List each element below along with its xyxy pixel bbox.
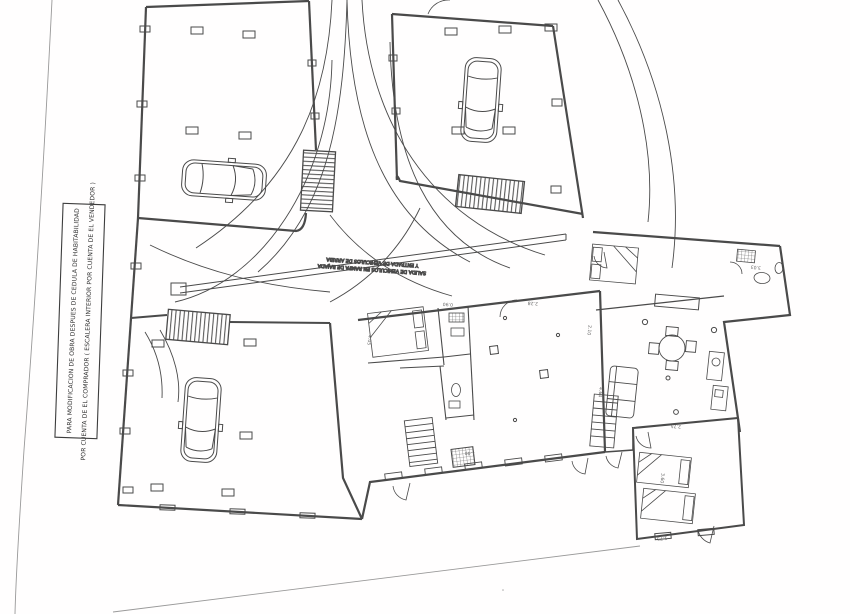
column [239, 132, 251, 139]
apartment-centre [358, 291, 605, 519]
dimension-label: 2.10 [585, 325, 592, 336]
right-block [590, 232, 790, 543]
annotation-box-frame [55, 203, 105, 438]
column [503, 127, 515, 134]
hatched-ramp-icon [456, 175, 525, 214]
column [186, 127, 198, 134]
pilaster [551, 186, 561, 193]
column [499, 26, 511, 33]
dimension-label: 2.75 [671, 423, 682, 430]
column [243, 31, 255, 38]
dimension-label: 0.90 [443, 301, 454, 308]
dimension-label: 1.75 [657, 535, 668, 542]
dimension-label: 3.60 [658, 473, 665, 484]
paper-left-edge [15, 0, 52, 614]
floor-plan-drawing: PARA MODIFICACION DE OBRA DESPUES DE CED… [0, 0, 850, 614]
kitchen-counter [707, 351, 729, 410]
dining-table-icon [648, 326, 696, 370]
column [244, 339, 256, 346]
scanned-floor-plan-page: PARA MODIFICACION DE OBRA DESPUES DE CED… [0, 0, 850, 614]
column [490, 346, 499, 355]
dimension-label: 2.28 [528, 300, 539, 307]
paper-bottom-edge [113, 546, 640, 612]
bed-icon [641, 488, 696, 523]
column [240, 432, 252, 439]
column [452, 127, 464, 134]
column [152, 340, 164, 347]
column [191, 27, 203, 34]
door-swing-icon [428, 0, 450, 14]
garage-top-left [135, 1, 336, 231]
staircase-icon [404, 417, 437, 466]
column [540, 370, 549, 379]
kitchen-hatch [451, 447, 475, 468]
car-icon [456, 57, 506, 144]
car-icon [181, 155, 268, 205]
dimension-label: 4.05 [365, 335, 372, 346]
bathroom-fixtures [449, 313, 464, 408]
door-swing-icon [393, 300, 588, 500]
dimension-label: 4.64 [596, 387, 603, 398]
column [445, 28, 457, 35]
plan: SALIDA DE VEHICULOS EN RAMPA DE BAJADA Y… [118, 0, 790, 543]
car-icon [176, 377, 226, 464]
column [222, 489, 234, 496]
dimension-label: 3.03 [750, 263, 761, 270]
wardrobe [655, 294, 700, 310]
pilaster [552, 99, 562, 106]
bed-icon [590, 244, 639, 284]
scan-speck [502, 589, 504, 591]
annotation-box: PARA MODIFICACION DE OBRA DESPUES DE CED… [54, 181, 106, 461]
toilet-icon [452, 384, 461, 397]
hatched-ramp-icon [166, 309, 230, 344]
dimension-labels: 2.28 4.05 3.60 1.75 4.64 0.90 2.10 3.03 … [365, 263, 761, 541]
sofa-icon [605, 366, 638, 419]
pilaster [131, 263, 141, 269]
column [151, 484, 163, 491]
garage-top-right [389, 0, 583, 218]
pilaster [120, 428, 130, 434]
pilaster [123, 487, 133, 493]
dimension-label: 1.40 [465, 450, 476, 457]
paper-edge-lines [15, 0, 640, 614]
